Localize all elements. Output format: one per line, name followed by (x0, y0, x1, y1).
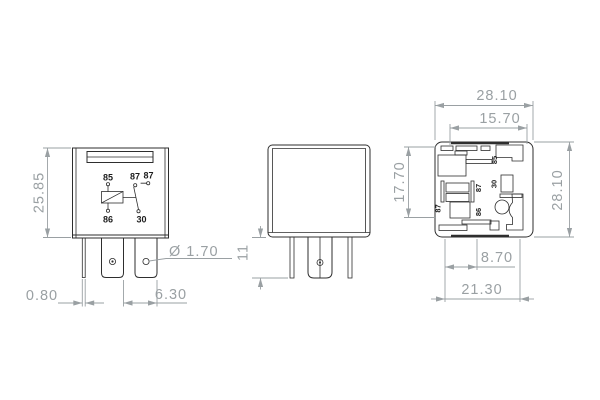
bottom-label-85: 85 (490, 156, 499, 164)
dim-bottom-pin-offset: 8.70 (445, 239, 515, 270)
slot-lower (462, 220, 491, 224)
coil-pocket-tab (455, 151, 467, 155)
dim-front-height: 25.85 (32, 148, 72, 238)
slot-bottom-left (439, 225, 467, 231)
side-pin-right (348, 237, 352, 278)
terminal-86-node (106, 209, 109, 212)
blade-1-hole-center (111, 260, 113, 262)
circuit-label-87-left: 87 (130, 172, 140, 182)
dim-pin-spacing: 6.30 (124, 280, 188, 307)
coil-diagonal (102, 192, 124, 204)
bottom-label-87-outer: 87 (434, 204, 443, 212)
rail-left (441, 181, 444, 202)
terminal-85-node (106, 183, 109, 186)
circuit-label-87-right: 87 (143, 171, 153, 181)
circuit-label-86: 86 (103, 215, 113, 225)
terminal-slot-85 (466, 160, 492, 164)
dim-bottom-overall-height: 28.10 (534, 142, 574, 237)
vent-slot-3 (481, 146, 490, 151)
round-boss (495, 200, 509, 214)
terminal-slot-87-lower (446, 194, 469, 202)
relay-body-side (268, 145, 370, 237)
thin-pin (82, 238, 85, 278)
terminal-30-node (137, 210, 140, 213)
dim-bottom-base-width: 21.30 (431, 239, 534, 302)
side-body-edges (268, 149, 370, 233)
bottom-label-30: 30 (490, 180, 499, 188)
dim-front-height-label: 25.85 (32, 172, 48, 213)
front-terminals (82, 238, 157, 278)
dim-inner-height-label: 17.70 (392, 161, 408, 202)
coil-pocket (438, 155, 466, 176)
relay-circuit-schematic: 85 87 87 86 30 (102, 171, 154, 225)
clip-cutout (507, 194, 524, 230)
dim-inner-width-label: 15.70 (479, 111, 520, 127)
blade-terminal-2 (135, 238, 157, 278)
dim-overall-height-label: 28.10 (550, 169, 566, 210)
terminal-slot-87-upper (446, 183, 469, 192)
side-terminals (290, 237, 352, 278)
terminal-87-left-node (134, 184, 137, 187)
dim-hole-diameter: Ø 1.70 (149, 244, 232, 261)
corner-pocket (496, 145, 523, 161)
technical-drawing-page: 85 87 87 86 30 25.85 0.80 (0, 0, 600, 400)
blade-2-hole (143, 258, 149, 264)
terminal-87-right-node (147, 182, 150, 185)
dim-pin-spacing-label: 6.30 (155, 287, 187, 303)
circuit-label-85: 85 (103, 173, 113, 183)
vent-slot-2 (456, 146, 477, 151)
terminal-pocket-86 (450, 202, 470, 218)
bottom-label-86: 86 (474, 208, 483, 216)
vent-slot-1 (441, 146, 453, 151)
dim-bottom-inner-width: 15.70 (450, 111, 527, 145)
dim-bottom-inner-height: 17.70 (392, 147, 436, 218)
side-view: 11 (236, 145, 371, 290)
circuit-label-30: 30 (136, 215, 146, 225)
terminal-slot-30 (501, 175, 513, 192)
bottom-view: 85 30 87 87 86 28.10 15.70 17.70 28 (392, 88, 574, 302)
dim-hole-diameter-label: Ø 1.70 (169, 244, 219, 260)
side-pin-left (290, 237, 294, 278)
relay-engineering-drawing: 85 87 87 86 30 25.85 0.80 (0, 0, 600, 400)
front-view: 85 87 87 86 30 25.85 0.80 (26, 148, 232, 307)
dim-pin-width: 0.80 (26, 279, 104, 307)
dim-pin-length: 11 (236, 226, 289, 290)
blade-terminal-1 (102, 238, 124, 278)
slot-right (500, 194, 522, 198)
bottom-label-87-center: 87 (474, 184, 483, 192)
relay-body-bottom (435, 142, 533, 237)
dim-pin-width-label: 0.80 (26, 288, 58, 304)
dim-overall-width-label: 28.10 (476, 88, 517, 104)
dim-base-width-label: 21.30 (461, 282, 502, 298)
side-blade-hole-center (319, 262, 321, 264)
dim-pin-offset-label: 8.70 (481, 250, 513, 266)
dim-pin-length-label: 11 (236, 244, 252, 261)
bottom-features: 85 30 87 87 86 (434, 145, 524, 231)
